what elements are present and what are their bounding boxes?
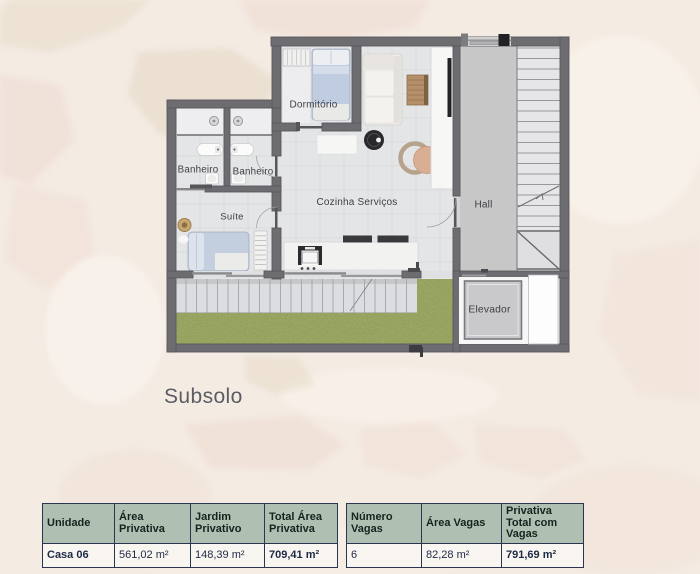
svg-text:Elevador: Elevador — [468, 305, 511, 316]
svg-text:Banheiro: Banheiro — [233, 167, 274, 178]
svg-text:Hall: Hall — [474, 200, 492, 211]
svg-text:Suíte: Suíte — [220, 212, 243, 223]
svg-text:Cozinha Serviços: Cozinha Serviços — [316, 197, 397, 208]
svg-text:Banheiro: Banheiro — [178, 165, 219, 176]
svg-text:Dormitório: Dormitório — [289, 100, 337, 111]
